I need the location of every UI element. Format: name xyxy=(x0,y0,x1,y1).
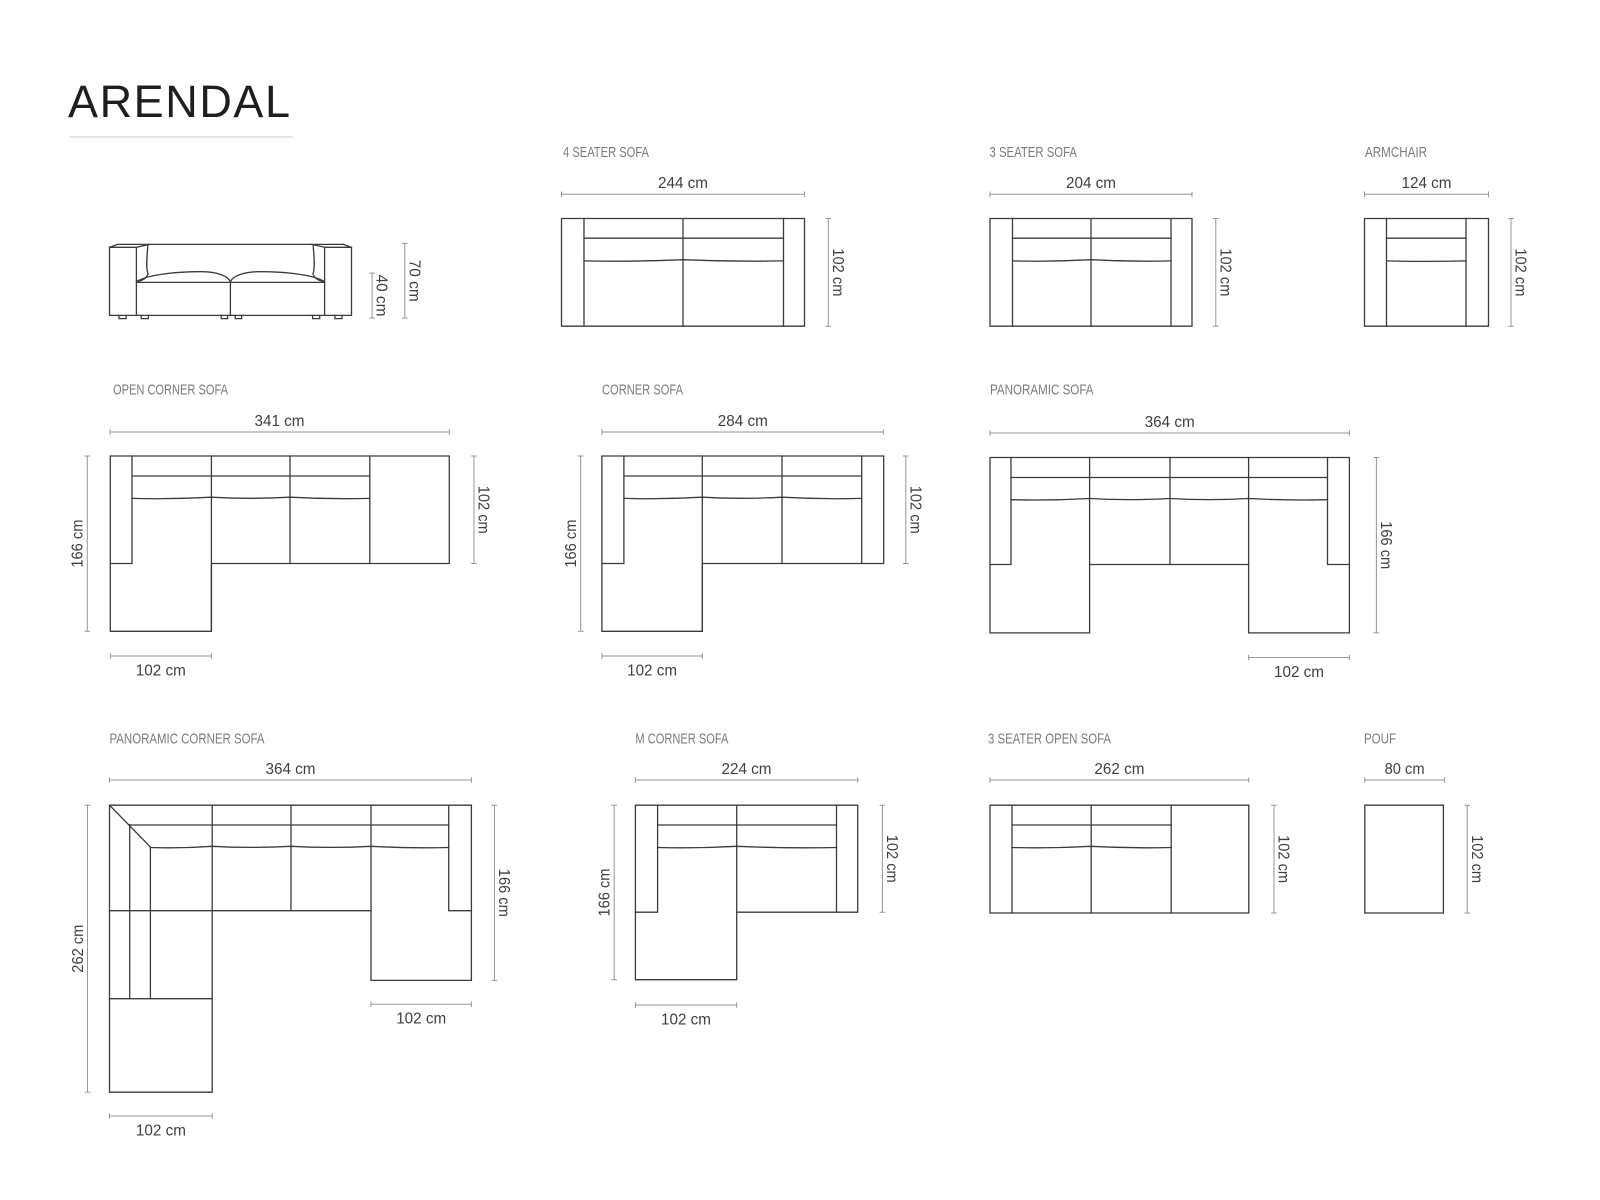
svg-text:284 cm: 284 cm xyxy=(718,413,768,430)
svg-text:102 cm: 102 cm xyxy=(1512,248,1529,296)
svg-text:224 cm: 224 cm xyxy=(722,761,772,778)
svg-text:102 cm: 102 cm xyxy=(829,248,846,296)
svg-text:166 cm: 166 cm xyxy=(495,869,512,917)
svg-text:ARMCHAIR: ARMCHAIR xyxy=(1365,144,1427,161)
svg-text:341 cm: 341 cm xyxy=(255,413,305,430)
svg-text:40 cm: 40 cm xyxy=(373,275,390,317)
svg-text:262 cm: 262 cm xyxy=(70,925,87,973)
svg-text:102 cm: 102 cm xyxy=(627,663,677,680)
svg-text:102 cm: 102 cm xyxy=(1275,835,1292,883)
svg-text:4 SEATER SOFA: 4 SEATER SOFA xyxy=(563,144,649,161)
svg-text:102 cm: 102 cm xyxy=(1216,248,1233,296)
svg-text:102 cm: 102 cm xyxy=(475,486,492,534)
svg-text:102 cm: 102 cm xyxy=(906,486,923,534)
svg-text:102 cm: 102 cm xyxy=(661,1012,711,1029)
svg-text:364 cm: 364 cm xyxy=(266,761,316,778)
svg-text:102 cm: 102 cm xyxy=(136,663,186,680)
svg-text:102 cm: 102 cm xyxy=(136,1123,186,1140)
svg-text:204 cm: 204 cm xyxy=(1066,175,1116,192)
svg-text:102 cm: 102 cm xyxy=(1468,835,1485,883)
svg-text:CORNER SOFA: CORNER SOFA xyxy=(602,382,683,399)
svg-text:124 cm: 124 cm xyxy=(1402,175,1452,192)
svg-text:166 cm: 166 cm xyxy=(597,869,614,917)
svg-text:166 cm: 166 cm xyxy=(70,520,87,568)
svg-text:166 cm: 166 cm xyxy=(563,520,580,568)
svg-text:244 cm: 244 cm xyxy=(658,175,708,192)
svg-text:3 SEATER OPEN SOFA: 3 SEATER OPEN SOFA xyxy=(988,731,1111,748)
svg-text:102 cm: 102 cm xyxy=(1274,664,1324,681)
svg-text:80 cm: 80 cm xyxy=(1385,761,1425,778)
svg-text:364 cm: 364 cm xyxy=(1145,414,1195,431)
svg-text:70 cm: 70 cm xyxy=(405,260,422,302)
svg-text:M CORNER SOFA: M CORNER SOFA xyxy=(635,731,728,748)
svg-text:262 cm: 262 cm xyxy=(1094,761,1144,778)
svg-text:POUF: POUF xyxy=(1364,731,1396,748)
svg-text:102 cm: 102 cm xyxy=(396,1011,446,1028)
svg-text:ARENDAL: ARENDAL xyxy=(68,76,290,127)
svg-text:OPEN CORNER SOFA: OPEN CORNER SOFA xyxy=(113,382,228,399)
svg-text:PANORAMIC SOFA: PANORAMIC SOFA xyxy=(990,382,1094,399)
svg-text:102 cm: 102 cm xyxy=(883,835,900,883)
svg-text:3 SEATER SOFA: 3 SEATER SOFA xyxy=(990,144,1078,161)
svg-text:PANORAMIC CORNER SOFA: PANORAMIC CORNER SOFA xyxy=(110,731,265,748)
svg-text:166 cm: 166 cm xyxy=(1377,521,1394,569)
